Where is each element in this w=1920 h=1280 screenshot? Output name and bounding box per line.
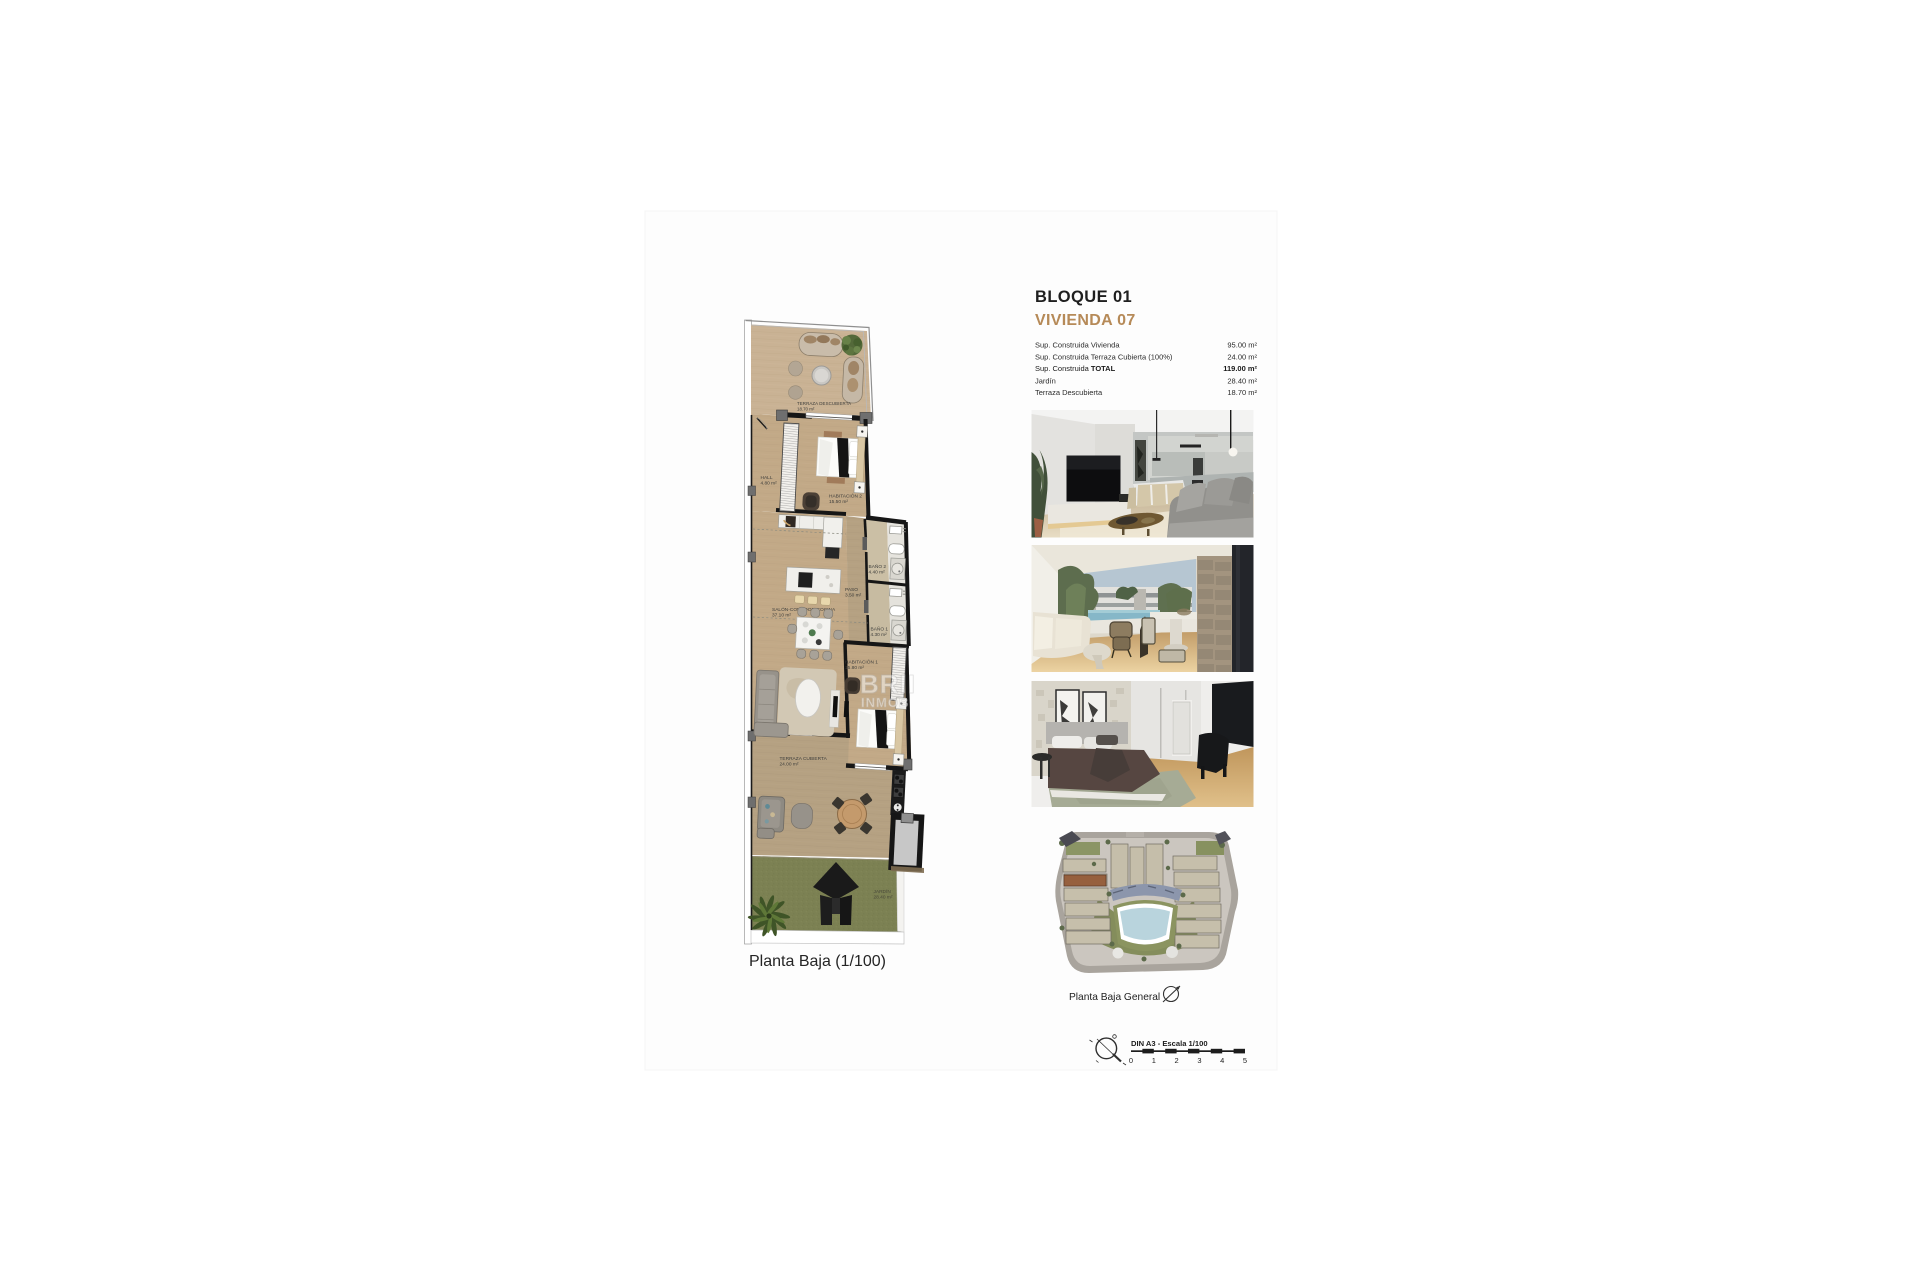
svg-text:37.10 m²: 37.10 m²	[772, 613, 791, 619]
svg-text:4.30 m²: 4.30 m²	[871, 632, 888, 638]
svg-text:TERRAZA CUBIERTA: TERRAZA CUBIERTA	[780, 756, 828, 762]
svg-text:BLOQUE 01: BLOQUE 01	[1035, 288, 1132, 306]
svg-text:PASO: PASO	[845, 587, 858, 593]
svg-text:24.00 m²: 24.00 m²	[1227, 353, 1257, 362]
svg-text:24.00 m²: 24.00 m²	[780, 762, 799, 768]
svg-text:HABITACIÓN 2: HABITACIÓN 2	[829, 493, 862, 500]
svg-text:Sup. Construida Terraza Cubier: Sup. Construida Terraza Cubierta (100%)	[1035, 353, 1173, 362]
svg-text:4.40 m²: 4.40 m²	[869, 570, 886, 576]
svg-text:4: 4	[1220, 1056, 1224, 1065]
svg-text:TERRAZA DESCUBIERTA: TERRAZA DESCUBIERTA	[797, 401, 851, 406]
svg-text:JARDÍN: JARDÍN	[874, 888, 892, 895]
svg-text:28.40 m²: 28.40 m²	[1227, 377, 1257, 386]
svg-text:18.70 m²: 18.70 m²	[1227, 388, 1257, 397]
svg-text:Sup. Construida Vivienda: Sup. Construida Vivienda	[1035, 341, 1120, 350]
svg-text:3: 3	[1197, 1056, 1201, 1065]
svg-text:VIVIENDA 07: VIVIENDA 07	[1035, 312, 1136, 329]
svg-text:5: 5	[1243, 1056, 1247, 1065]
svg-text:BAÑO 1: BAÑO 1	[871, 626, 889, 633]
svg-text:4.80 m²: 4.80 m²	[761, 481, 778, 487]
svg-text:Sup. Construida TOTAL: Sup. Construida TOTAL	[1035, 364, 1116, 373]
svg-text:INMOB: INMOB	[861, 695, 909, 710]
svg-text:28.40 m²: 28.40 m²	[874, 895, 893, 901]
svg-text:1: 1	[1152, 1056, 1156, 1065]
svg-text:DIN A3 - Escala 1/100: DIN A3 - Escala 1/100	[1131, 1039, 1208, 1048]
svg-text:Planta Baja General: Planta Baja General	[1069, 992, 1160, 1003]
svg-text:Planta Baja (1/100): Planta Baja (1/100)	[749, 953, 886, 970]
svg-text:119.00 m²: 119.00 m²	[1223, 364, 1257, 373]
svg-text:HABITACIÓN 1: HABITACIÓN 1	[845, 659, 878, 666]
svg-text:HALL: HALL	[761, 475, 773, 481]
svg-text:18.70 m²: 18.70 m²	[797, 407, 815, 412]
svg-text:Terraza Descubierta: Terraza Descubierta	[1035, 388, 1103, 397]
svg-text:2: 2	[1175, 1056, 1179, 1065]
svg-text:BAÑO 2: BAÑO 2	[869, 563, 887, 570]
svg-text:3.50 m²: 3.50 m²	[845, 593, 862, 599]
svg-text:0: 0	[1129, 1056, 1133, 1065]
svg-text:95.00 m²: 95.00 m²	[1227, 341, 1257, 350]
svg-text:Jardín: Jardín	[1035, 377, 1056, 386]
svg-text:15.50 m²: 15.50 m²	[829, 499, 848, 505]
